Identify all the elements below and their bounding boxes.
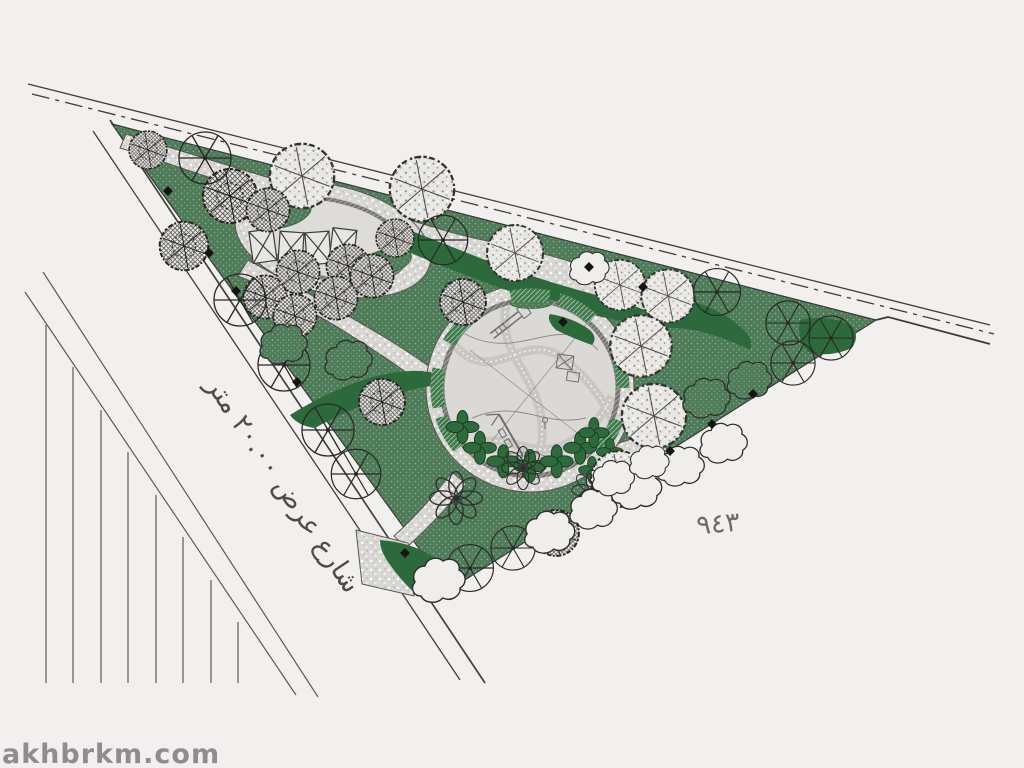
- watermark-text: akhbrkm.com: [2, 739, 220, 768]
- site-plan-drawing: [0, 0, 1024, 768]
- site-plan-page: شارع عرض ٢٠.٠٠ متر ٩٤٣ akhbrkm.com: [0, 0, 1024, 768]
